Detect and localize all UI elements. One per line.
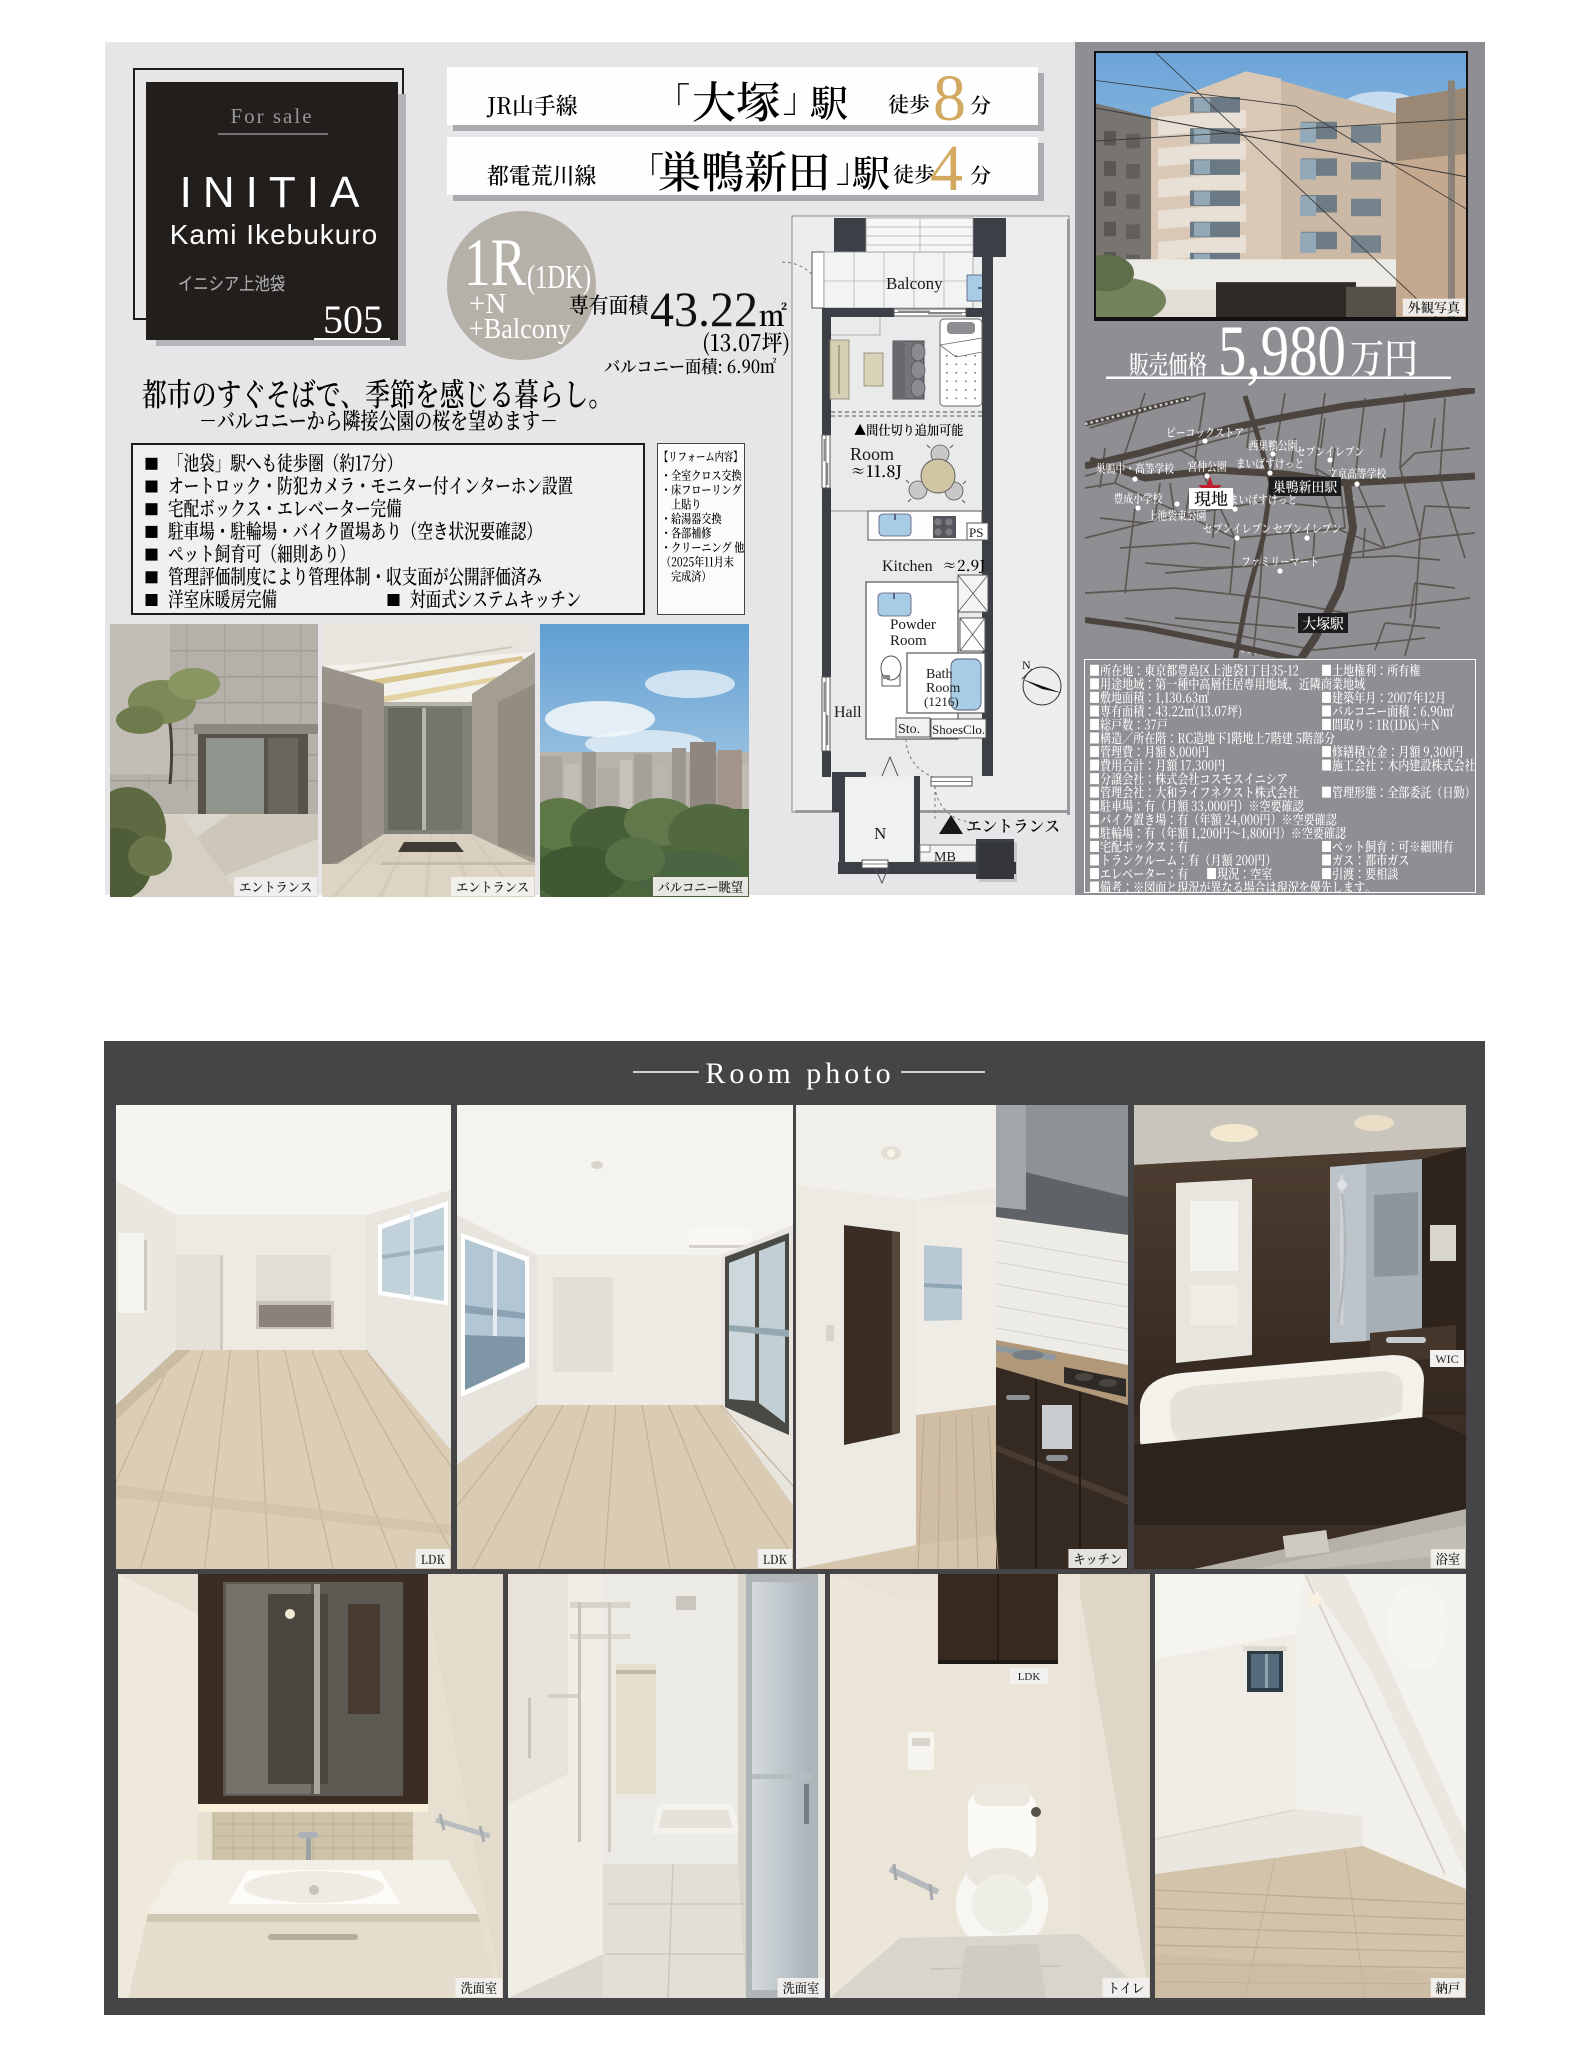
svg-text:Hall: Hall — [834, 704, 862, 721]
svg-text:Kitchen: Kitchen — [882, 558, 933, 575]
svg-text:Room: Room — [850, 444, 894, 464]
svg-text:N: N — [1022, 658, 1031, 672]
svg-text:ShoesClo.: ShoesClo. — [932, 722, 985, 737]
svg-text:Sto.: Sto. — [898, 722, 920, 737]
svg-text:Powder: Powder — [890, 617, 936, 633]
svg-text:Balcony: Balcony — [886, 274, 943, 293]
svg-text:MB: MB — [934, 850, 956, 865]
svg-text:Room: Room — [890, 633, 927, 649]
svg-text:Room photo: Room photo — [705, 1057, 894, 1090]
svg-text:N: N — [874, 824, 886, 843]
svg-text:LDK: LDK — [1018, 1671, 1041, 1683]
svg-text:WIC: WIC — [1435, 1352, 1458, 1366]
svg-text:PS: PS — [969, 525, 983, 540]
svg-text:(1216): (1216) — [924, 694, 959, 709]
svg-text:Bath: Bath — [926, 667, 952, 682]
